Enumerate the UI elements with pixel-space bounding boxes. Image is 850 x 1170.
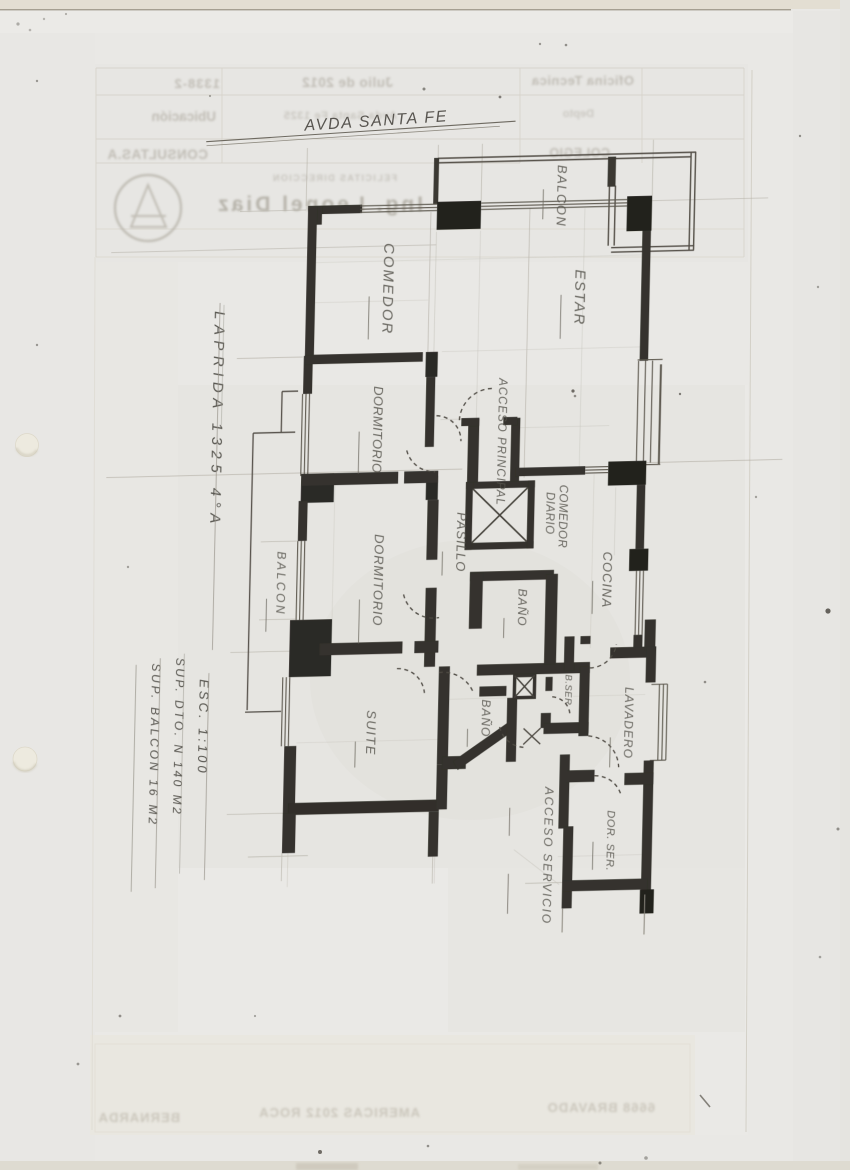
svg-text:ESC. 1:100: ESC. 1:100 — [195, 679, 212, 776]
svg-text:PASILLO: PASILLO — [453, 512, 469, 573]
svg-text:Oficina Tecnica: Oficina Tecnica — [531, 73, 634, 88]
svg-text:FELICITAS DIRECCION: FELICITAS DIRECCION — [272, 173, 397, 183]
svg-text:COCINA: COCINA — [599, 551, 615, 608]
svg-text:DORMITORIO: DORMITORIO — [369, 386, 386, 474]
svg-text:CONSULTAS.A: CONSULTAS.A — [107, 147, 208, 162]
svg-text:DORMITORIO: DORMITORIO — [370, 534, 387, 627]
svg-text:BALCON: BALCON — [273, 551, 288, 616]
svg-text:BERNARDA: BERNARDA — [98, 1110, 180, 1125]
svg-text:B.SER: B.SER — [562, 674, 574, 705]
svg-text:DIARIO: DIARIO — [543, 492, 556, 535]
svg-text:ESTAR: ESTAR — [570, 269, 588, 326]
svg-text:DOR. SER.: DOR. SER. — [603, 810, 616, 871]
svg-text:BAÑO: BAÑO — [478, 699, 493, 737]
svg-text:Depto: Depto — [563, 108, 594, 120]
svg-text:BALCON: BALCON — [554, 165, 570, 228]
svg-text:COLEGIO: COLEGIO — [549, 146, 610, 160]
svg-text:COMEDOR: COMEDOR — [378, 243, 397, 336]
svg-text:6668 BRAVADO: 6668 BRAVADO — [547, 1100, 655, 1115]
svg-text:Ubicación: Ubicación — [151, 109, 216, 124]
svg-text:1338-2: 1338-2 — [174, 76, 220, 91]
svg-text:LAVADERO: LAVADERO — [621, 687, 637, 759]
svg-text:SUITE: SUITE — [363, 710, 379, 756]
svg-text:COMEDOR: COMEDOR — [555, 485, 568, 549]
svg-text:BAÑO: BAÑO — [515, 588, 530, 626]
svg-text:Julio de 2012: Julio de 2012 — [302, 75, 393, 90]
svg-text:AMERICAS 2012 ROCA: AMERICAS 2012 ROCA — [258, 1105, 420, 1120]
